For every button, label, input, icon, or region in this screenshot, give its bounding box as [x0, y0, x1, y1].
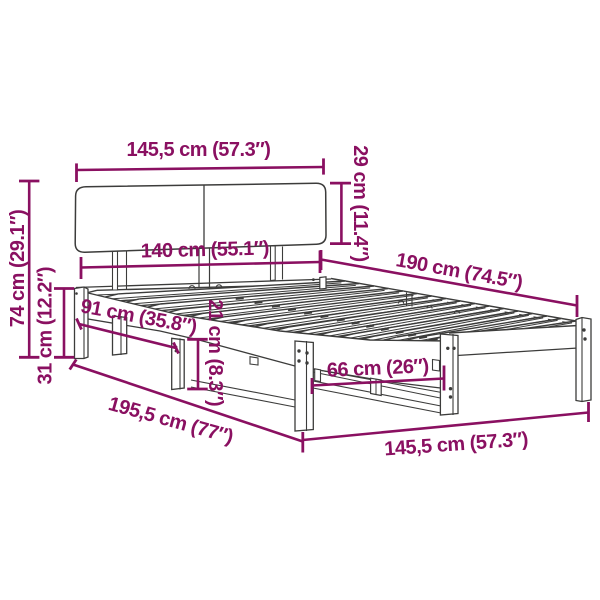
- svg-text:31 cm (12.2″): 31 cm (12.2″): [34, 267, 56, 385]
- svg-text:29 cm (11.4″): 29 cm (11.4″): [349, 145, 371, 262]
- svg-text:145,5 cm (57.3″): 145,5 cm (57.3″): [127, 139, 271, 161]
- svg-text:66 cm (26″): 66 cm (26″): [326, 355, 429, 382]
- svg-text:74 cm (29.1″): 74 cm (29.1″): [7, 210, 29, 328]
- svg-text:21 cm (8.3″): 21 cm (8.3″): [204, 299, 226, 406]
- svg-text:140 cm (55.1″): 140 cm (55.1″): [141, 238, 270, 263]
